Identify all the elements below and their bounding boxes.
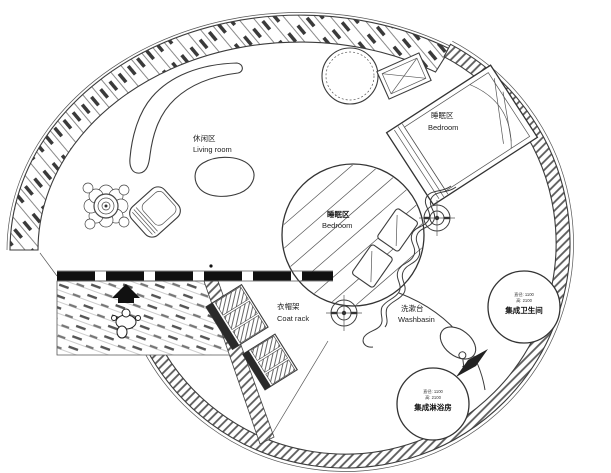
bedroom-center-label-zh: 睡眠区: [327, 209, 350, 219]
shower-pod-label: 集成淋浴房: [413, 402, 452, 412]
bedroom-center-label-en: Bedroom: [322, 221, 352, 230]
washbasin-label-en: Washbasin: [398, 315, 435, 324]
plant-icon: [83, 183, 129, 229]
bathroom-pod: 直径: 1100 高: 2100 集成卫生间: [488, 271, 560, 343]
bedroom-upper-label-en: Bedroom: [428, 123, 458, 132]
marker-dot: [209, 264, 212, 267]
washbasin-label-zh: 洗漱台: [401, 303, 424, 313]
armchair: [126, 183, 184, 241]
deck-terrace: [57, 281, 233, 355]
coffee-table: [195, 157, 254, 196]
living-room-label-zh: 休闲区: [193, 133, 216, 143]
living-room-label-en: Living room: [193, 145, 232, 154]
shower-pod-spec2: 高: 2100: [425, 394, 442, 401]
floor-plan-canvas: 直径: 1100 高: 2100 集成卫生间 直径: 1100 高: 2100 …: [0, 0, 611, 473]
coat-rack-label-zh: 衣帽架: [277, 301, 300, 311]
bathroom-pod-label: 集成卫生间: [504, 305, 543, 315]
bedroom-upper-label-zh: 睡眠区: [431, 111, 454, 120]
floor-plan: 直径: 1100 高: 2100 集成卫生间 直径: 1100 高: 2100 …: [0, 0, 611, 473]
shower-pod-spec1: 直径: 1100: [423, 388, 443, 394]
bathroom-pod-spec1: 直径: 1100: [514, 291, 534, 297]
coat-rack-label-en: Coat rack: [277, 314, 309, 323]
bathroom-pod-spec2: 高: 2100: [516, 297, 533, 304]
round-table: [322, 48, 378, 104]
shower-pod: 直径: 1100 高: 2100 集成淋浴房: [397, 368, 469, 440]
